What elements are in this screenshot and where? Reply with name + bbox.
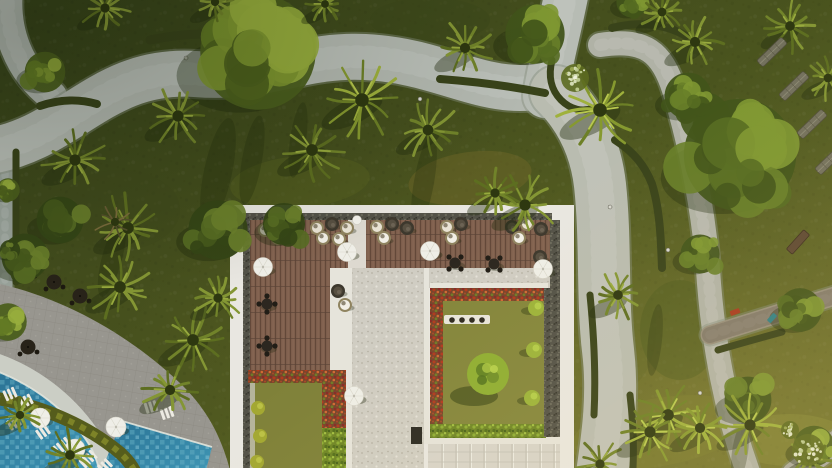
warm-light — [0, 0, 832, 468]
light-overlay — [0, 0, 832, 468]
resort-aerial-photograph — [0, 0, 832, 468]
aerial-scene-canvas — [0, 0, 832, 468]
